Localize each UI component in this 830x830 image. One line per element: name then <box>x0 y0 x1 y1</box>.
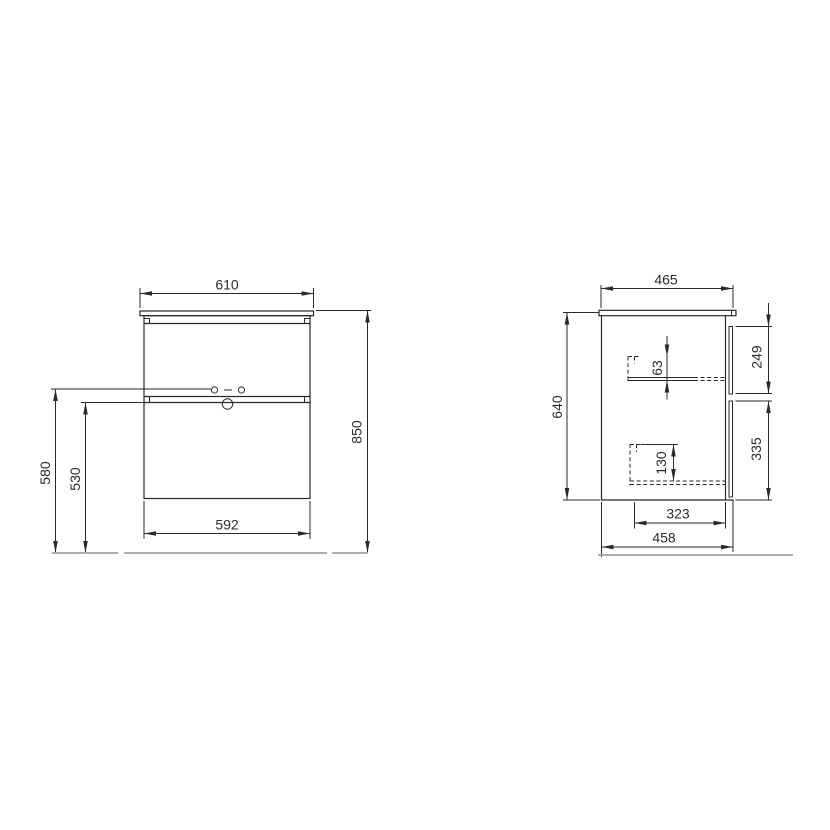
dim-upper-drawer-front-height: 249 <box>736 303 773 394</box>
dim-front-body-width: 592 <box>144 501 310 539</box>
dimension-label: 130 <box>653 451 669 475</box>
dim-front-countertop-width: 610 <box>140 277 314 309</box>
dimension-label: 640 <box>549 395 565 419</box>
side-view: 63 130 465 640 <box>549 272 772 558</box>
dim-drawer-box-depth: 323 <box>635 502 726 529</box>
side-countertop <box>599 310 736 315</box>
front-center-hole <box>222 399 232 409</box>
dimension-label: 335 <box>748 437 764 461</box>
dim-front-handle-height: 580 <box>37 389 211 553</box>
dimension-label: 323 <box>666 506 690 522</box>
front-holes <box>211 387 244 409</box>
front-cabinet <box>140 311 314 499</box>
front-cabinet-body <box>144 316 310 499</box>
ground-lines <box>52 553 793 555</box>
dimension-label: 580 <box>37 461 53 485</box>
handle-hole-left <box>211 387 217 393</box>
front-view: 610 850 580 530 592 <box>37 277 371 554</box>
dimension-label: 592 <box>215 517 239 533</box>
dimension-label: 465 <box>654 272 678 288</box>
side-upper-drawer-internals <box>628 357 726 381</box>
dim-lower-drawer-front-height: 335 <box>736 401 773 500</box>
cabinet-technical-drawing: 610 850 580 530 592 <box>0 0 830 830</box>
dim-side-body-height: 640 <box>549 313 600 501</box>
handle-hole-right <box>238 387 244 393</box>
dim-side-countertop-depth: 465 <box>601 272 733 309</box>
side-lower-drawer-internals <box>630 444 726 486</box>
dimension-label: 458 <box>652 530 676 546</box>
side-lower-drawer-front <box>729 401 733 497</box>
side-upper-drawer-front <box>729 327 733 395</box>
dimension-label: 249 <box>748 345 764 369</box>
dimension-label: 610 <box>215 277 239 293</box>
dimension-label: 530 <box>67 467 83 491</box>
dim-front-lower-drawer-top-height: 530 <box>67 403 144 554</box>
front-countertop <box>140 311 314 316</box>
technical-drawing-page: 610 850 580 530 592 <box>0 0 830 830</box>
dim-upper-drawer-inner-height: 63 <box>649 336 667 400</box>
dim-lower-drawer-inner-height: 130 <box>653 445 674 482</box>
dim-front-overall-height: 850 <box>316 311 371 554</box>
dimension-label: 850 <box>348 420 364 444</box>
dimension-label: 63 <box>649 360 665 376</box>
